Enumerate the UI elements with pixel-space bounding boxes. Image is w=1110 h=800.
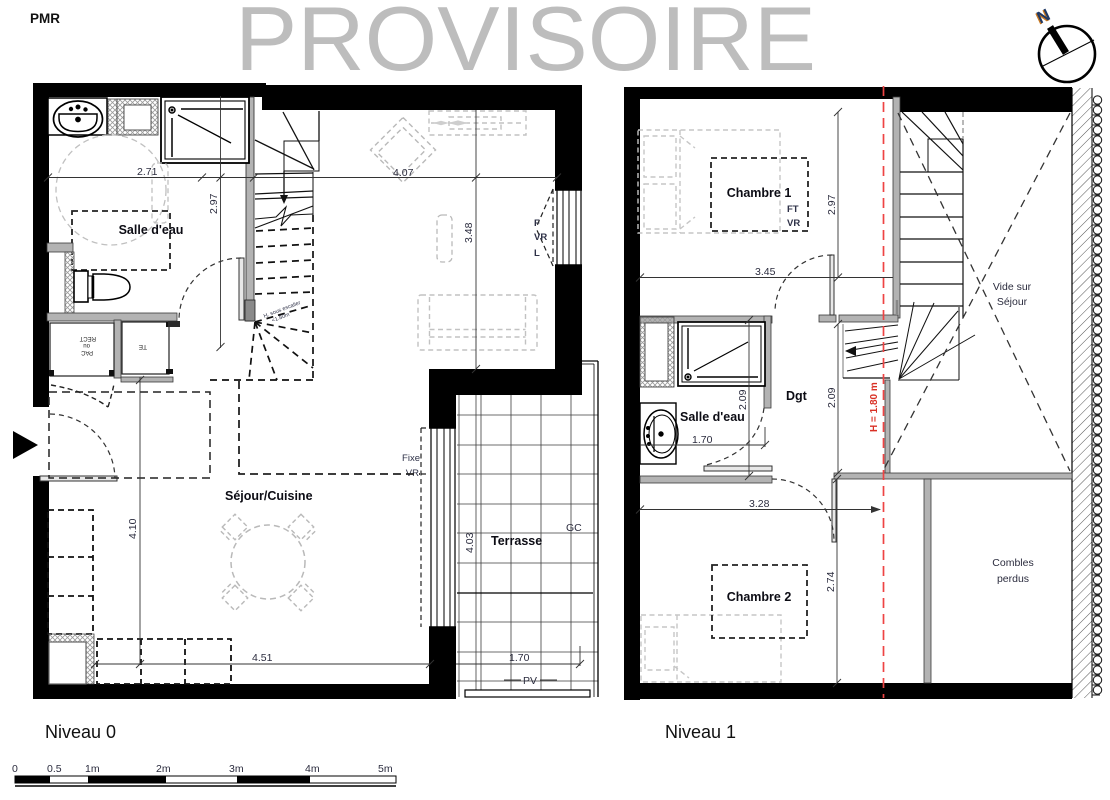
svg-text:perdus: perdus bbox=[997, 573, 1029, 585]
svg-text:1m: 1m bbox=[85, 763, 100, 775]
svg-text:3.28: 3.28 bbox=[749, 498, 770, 510]
svg-text:3.48: 3.48 bbox=[463, 222, 475, 243]
svg-text:Chambre 2: Chambre 2 bbox=[727, 590, 792, 604]
svg-text:Séjour: Séjour bbox=[997, 296, 1028, 308]
svg-text:L: L bbox=[534, 248, 540, 259]
svg-text:2.97: 2.97 bbox=[208, 193, 220, 214]
svg-text:ou: ou bbox=[83, 342, 90, 348]
svg-text:FT: FT bbox=[787, 204, 799, 215]
svg-text:Terrasse: Terrasse bbox=[491, 534, 542, 548]
svg-text:2m: 2m bbox=[156, 763, 171, 775]
svg-text:3m: 3m bbox=[229, 763, 244, 775]
svg-text:PAC: PAC bbox=[80, 349, 93, 355]
svg-text:PV: PV bbox=[523, 675, 537, 687]
svg-text:Fixe: Fixe bbox=[402, 453, 420, 464]
svg-text:VR: VR bbox=[534, 232, 547, 243]
svg-text:4.03: 4.03 bbox=[464, 532, 476, 553]
svg-text:PMR: PMR bbox=[30, 11, 60, 26]
svg-text:Combles: Combles bbox=[992, 557, 1033, 569]
svg-text:Chambre 1: Chambre 1 bbox=[727, 186, 792, 200]
svg-text:4.51: 4.51 bbox=[252, 652, 273, 664]
svg-text:0: 0 bbox=[12, 763, 18, 775]
svg-text:4.10: 4.10 bbox=[127, 518, 139, 539]
svg-text:TE: TE bbox=[138, 343, 147, 350]
svg-text:PROVISOIRE: PROVISOIRE bbox=[235, 0, 816, 90]
svg-text:Niveau 1: Niveau 1 bbox=[665, 722, 736, 742]
svg-text:Niveau 0: Niveau 0 bbox=[45, 722, 116, 742]
svg-text:2.97: 2.97 bbox=[826, 194, 838, 215]
svg-text:GC: GC bbox=[566, 522, 582, 534]
svg-text:4m: 4m bbox=[305, 763, 320, 775]
svg-text:1.70: 1.70 bbox=[509, 652, 530, 664]
svg-text:1.70: 1.70 bbox=[692, 434, 713, 446]
svg-text:5m: 5m bbox=[378, 763, 393, 775]
svg-text:3.45: 3.45 bbox=[755, 266, 776, 278]
svg-text:2.71: 2.71 bbox=[137, 166, 158, 178]
svg-text:Séjour/Cuisine: Séjour/Cuisine bbox=[225, 489, 313, 503]
svg-text:RECT: RECT bbox=[79, 335, 96, 341]
svg-text:F: F bbox=[534, 218, 540, 229]
svg-text:Salle d'eau: Salle d'eau bbox=[680, 410, 745, 424]
svg-text:2.09: 2.09 bbox=[737, 389, 749, 410]
svg-text:VR: VR bbox=[787, 218, 800, 229]
svg-text:Dgt: Dgt bbox=[786, 389, 808, 403]
svg-text:4.07: 4.07 bbox=[393, 167, 414, 179]
svg-text:Vide sur: Vide sur bbox=[993, 281, 1032, 293]
svg-text:2.09: 2.09 bbox=[826, 387, 838, 408]
svg-text:Salle d'eau: Salle d'eau bbox=[119, 223, 184, 237]
svg-text:0.5: 0.5 bbox=[47, 763, 62, 775]
svg-text:2.74: 2.74 bbox=[825, 571, 837, 592]
svg-text:H = 1.80 m: H = 1.80 m bbox=[869, 382, 880, 432]
